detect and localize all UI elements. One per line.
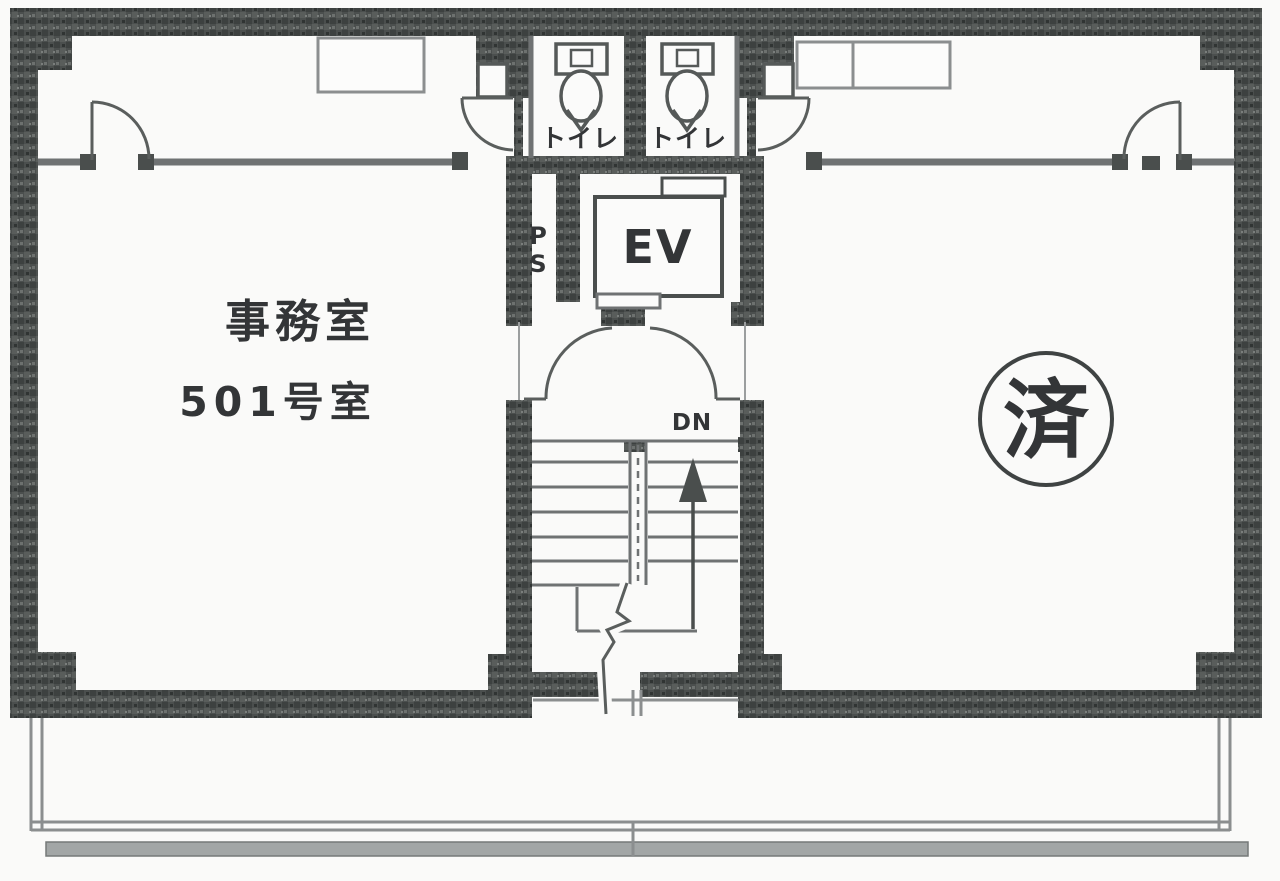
wall-hall-top-right bbox=[731, 302, 764, 326]
floor-plan-page: トイレ トイレ P S EV DN bbox=[0, 0, 1280, 881]
wall-core-left-upper bbox=[506, 156, 532, 322]
door-jamb bbox=[1112, 154, 1128, 170]
pipe-space-letter-s: S bbox=[529, 250, 546, 278]
sink-right bbox=[764, 64, 793, 97]
counter-left bbox=[318, 38, 424, 92]
sink-left bbox=[478, 64, 507, 97]
toilet-right-label: トイレ bbox=[649, 124, 727, 153]
seal-label: 済 bbox=[1003, 371, 1090, 471]
door-jamb bbox=[80, 154, 96, 170]
column-top-left bbox=[10, 8, 72, 70]
elevator-door bbox=[597, 294, 660, 308]
elevator-label: EV bbox=[622, 220, 693, 274]
wall-stub-right-vestibule bbox=[747, 96, 756, 160]
room-name-label: 事務室 bbox=[225, 295, 375, 348]
wall-toilet-divider bbox=[624, 36, 646, 158]
column-top-right bbox=[1200, 8, 1262, 70]
balcony-parapet-band bbox=[46, 842, 1248, 856]
outer-wall-left bbox=[10, 8, 38, 718]
stairs-down-label: DN bbox=[672, 410, 712, 436]
wall-hall-bottom-left bbox=[506, 437, 532, 452]
door-jamb bbox=[1176, 154, 1192, 170]
column-bottom-left bbox=[38, 652, 76, 690]
elevator-counterweight bbox=[662, 178, 725, 196]
door-jamb bbox=[138, 154, 154, 170]
door-jamb bbox=[1142, 156, 1160, 170]
wall-ps-ev-divider bbox=[556, 174, 580, 302]
pier-stair-left bbox=[488, 654, 532, 718]
wall-stub-left-vestibule bbox=[514, 96, 523, 160]
floor-plan-drawing: トイレ トイレ P S EV DN bbox=[0, 0, 1280, 881]
column-bottom-right bbox=[1196, 652, 1234, 690]
door-jamb bbox=[806, 152, 822, 170]
wall-core-right-upper bbox=[740, 156, 764, 322]
wall-core-top bbox=[506, 156, 764, 174]
counter-right bbox=[797, 42, 950, 88]
outer-wall-bottom-left bbox=[10, 690, 506, 718]
toilet-left-label: トイレ bbox=[541, 124, 619, 153]
door-jamb bbox=[452, 152, 468, 170]
pipe-space-letter-p: P bbox=[529, 222, 547, 250]
outer-wall-bottom-right bbox=[764, 690, 1262, 718]
elevator-shaft: EV bbox=[595, 178, 725, 308]
room-number-label: 501号室 bbox=[179, 378, 377, 426]
wall-hall-bottom-right bbox=[738, 437, 764, 452]
pier-stair-right bbox=[738, 654, 782, 718]
pipe-space: P S bbox=[529, 222, 547, 278]
outer-wall-top bbox=[10, 8, 1262, 36]
outer-wall-right bbox=[1234, 8, 1262, 718]
